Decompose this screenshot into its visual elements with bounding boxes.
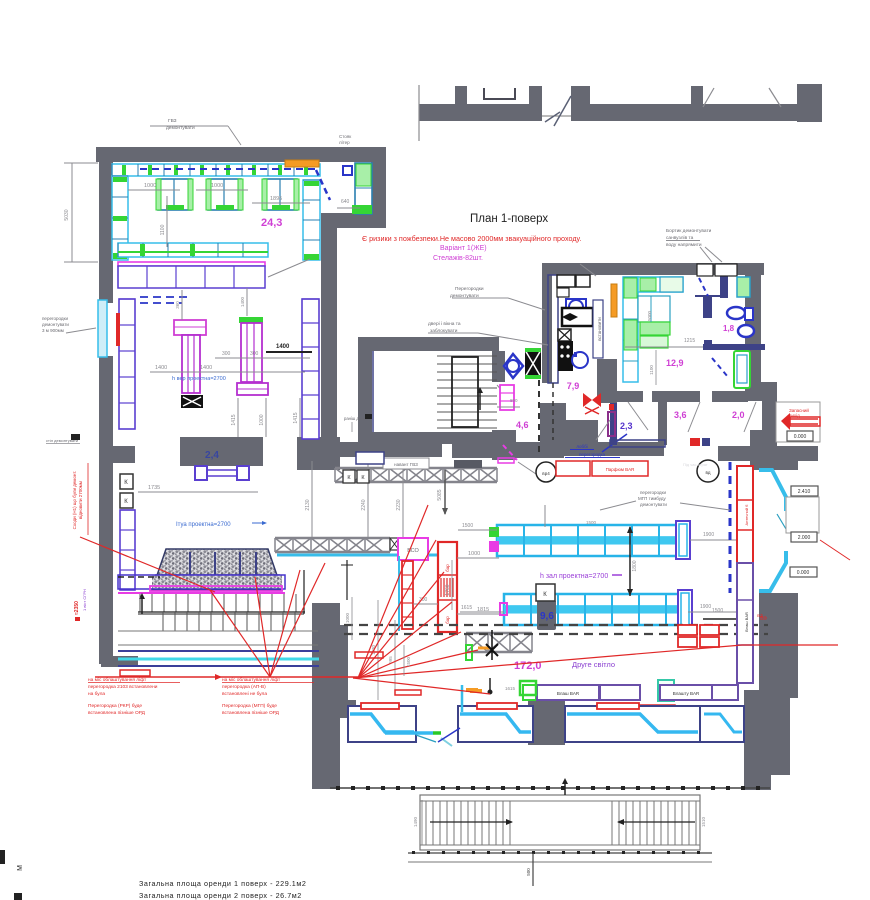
svg-text:літер: літер: [339, 140, 350, 145]
svg-text:перегородка: перегородка: [579, 452, 606, 457]
svg-text:0.000: 0.000: [794, 434, 807, 440]
svg-text:двері і вікна та: двері і вікна та: [428, 321, 461, 327]
svg-text:1415: 1415: [293, 412, 299, 423]
svg-text:вд: вд: [706, 470, 711, 475]
svg-text:Ітуа проектна=2700: Ітуа проектна=2700: [176, 522, 231, 528]
svg-text:7,9: 7,9: [567, 381, 580, 391]
svg-text:1400: 1400: [200, 365, 212, 371]
svg-text:Стояк: Стояк: [339, 134, 351, 139]
svg-text:3 м 900мм: 3 м 900мм: [42, 328, 64, 333]
svg-text:2.410: 2.410: [798, 489, 811, 495]
svg-text:1000: 1000: [211, 183, 223, 189]
svg-text:демонтувати: демонтувати: [166, 126, 195, 131]
svg-text:1415: 1415: [231, 414, 237, 425]
svg-text:2,0: 2,0: [732, 410, 745, 420]
svg-text:навант ГВЗ: навант ГВЗ: [394, 462, 418, 467]
svg-text:5030: 5030: [64, 209, 70, 220]
svg-text:12,9: 12,9: [666, 358, 684, 368]
svg-text:1615: 1615: [461, 605, 472, 611]
svg-text:демонтувати: демонтувати: [640, 502, 667, 507]
svg-text:К: К: [124, 499, 128, 505]
svg-text:2,4: 2,4: [205, 450, 219, 461]
svg-text:4,6: 4,6: [516, 420, 529, 430]
svg-text:Парфюм BAR: Парфюм BAR: [606, 467, 636, 472]
svg-text:1,8: 1,8: [723, 324, 735, 333]
svg-text:300: 300: [250, 351, 259, 357]
svg-text:3,6: 3,6: [674, 410, 687, 420]
svg-text:1735: 1735: [148, 485, 160, 491]
svg-text:2,3: 2,3: [620, 421, 633, 431]
svg-text:1000: 1000: [144, 183, 156, 189]
svg-text:встановлена пізніше ОРД: встановлена пізніше ОРД: [222, 710, 280, 716]
svg-text:1500: 1500: [462, 523, 473, 529]
svg-text:Влаш BAR: Влаш BAR: [744, 612, 749, 632]
svg-text:Перегородка (МГП) буде: Перегородка (МГП) буде: [222, 703, 277, 709]
svg-text:Друге світло: Друге світло: [572, 660, 615, 669]
svg-text:1760: 1760: [445, 584, 451, 595]
svg-text:1800: 1800: [632, 560, 638, 571]
svg-text:встановлені не була: встановлені не була: [222, 691, 267, 697]
svg-text:1900: 1900: [700, 604, 711, 610]
svg-text:перегородки: перегородки: [640, 490, 666, 495]
svg-text:h вер проектна=2700: h вер проектна=2700: [172, 376, 226, 382]
svg-text:Загальна площа оренди 2 поверх: Загальна площа оренди 2 поверх - 26.7м2: [139, 891, 302, 900]
svg-text:1490: 1490: [413, 816, 418, 827]
svg-text:Влаш BAR: Влаш BAR: [557, 691, 580, 696]
svg-text:1400: 1400: [240, 296, 245, 307]
svg-text:1900: 1900: [703, 532, 714, 538]
svg-text:Перегородки: Перегородки: [455, 286, 484, 292]
svg-text:1000: 1000: [259, 414, 265, 425]
svg-text:воду напрямити: воду напрямити: [666, 243, 702, 248]
svg-text:1895: 1895: [270, 196, 282, 202]
svg-text:на була: на була: [88, 691, 105, 697]
svg-text:2230: 2230: [396, 499, 402, 510]
svg-text:1100: 1100: [649, 365, 654, 375]
svg-text:1500: 1500: [406, 656, 411, 667]
svg-text:360: 360: [175, 301, 180, 309]
svg-text:Під час втрат: Під час втрат: [683, 462, 708, 467]
svg-text:9,6: 9,6: [540, 611, 554, 622]
svg-text:ГВЗ: ГВЗ: [168, 118, 177, 124]
svg-text:640: 640: [341, 199, 350, 205]
svg-text:1500: 1500: [586, 520, 597, 525]
svg-text:1500: 1500: [712, 608, 723, 614]
svg-text:5000: 5000: [647, 310, 652, 321]
svg-text:Бортик демонтувати: Бортик демонтувати: [666, 228, 712, 234]
svg-text:ВФ: ВФ: [760, 616, 767, 622]
svg-text:2.000: 2.000: [798, 535, 811, 541]
svg-text:2240: 2240: [361, 499, 367, 510]
svg-text:1215: 1215: [684, 338, 695, 344]
svg-text:К: К: [543, 592, 547, 598]
svg-text:відновити 2700мм: відновити 2700мм: [78, 481, 83, 519]
svg-text:1000: 1000: [468, 551, 480, 557]
svg-text:1400: 1400: [155, 365, 167, 371]
svg-text:К: К: [124, 480, 128, 486]
svg-text:МГП тимбуду: МГП тимбуду: [638, 496, 666, 501]
svg-text:1400: 1400: [276, 344, 290, 350]
svg-text:1 віст СГРН: 1 віст СГРН: [82, 589, 87, 611]
svg-text:300: 300: [222, 351, 231, 357]
svg-text:1615: 1615: [505, 686, 516, 691]
svg-text:500: 500: [526, 868, 531, 876]
svg-text:бар: бар: [445, 616, 450, 624]
svg-text:М: М: [17, 865, 24, 871]
svg-text:План 1-поверх: План 1-поверх: [470, 213, 548, 225]
svg-text:2130: 2130: [305, 499, 311, 510]
svg-text:h зал проектна=2700: h зал проектна=2700: [540, 573, 608, 580]
svg-text:≈2350: ≈2350: [74, 601, 80, 615]
svg-text:демонтувати: демонтувати: [42, 322, 69, 327]
svg-text:перегородки: перегородки: [42, 316, 68, 321]
svg-text:890: 890: [510, 398, 518, 403]
svg-text:Загальна площа оренди 1 поверх: Загальна площа оренди 1 поверх - 229.1м2: [139, 879, 306, 888]
svg-text:Аптечний б: Аптечний б: [744, 504, 749, 526]
svg-text:перегородка 2103 встановлени: перегородка 2103 встановлени: [88, 684, 158, 690]
svg-text:встановити: встановити: [597, 317, 602, 341]
svg-text:1100: 1100: [160, 224, 166, 235]
svg-text:вр4: вр4: [542, 471, 550, 476]
svg-text:5085: 5085: [437, 489, 443, 500]
svg-text:Влашту BAR: Влашту BAR: [673, 691, 700, 696]
svg-text:бар: бар: [445, 564, 450, 572]
svg-text:вихід: вихід: [789, 413, 800, 418]
svg-text:лоббі: лоббі: [576, 444, 587, 449]
svg-text:0.000: 0.000: [797, 570, 810, 576]
svg-text:встановлена пізніше ОРД: встановлена пізніше ОРД: [88, 710, 146, 716]
svg-text:24,3: 24,3: [261, 217, 282, 229]
svg-text:Варіант 1(ЖЕ): Варіант 1(ЖЕ): [440, 244, 487, 252]
svg-text:Сходи (Н1) що були демонт.: Сходи (Н1) що були демонт.: [72, 471, 77, 530]
svg-text:перегородка (АП-В): перегородка (АП-В): [222, 684, 266, 690]
svg-text:1000: 1000: [345, 612, 350, 623]
svg-text:Перегородка (РКР) буде: Перегородка (РКР) буде: [88, 703, 142, 709]
svg-text:Є ризики з пожбезпеки.Не масов: Є ризики з пожбезпеки.Не масово 2000мм з…: [362, 234, 581, 243]
svg-text:Стелажів-82шт.: Стелажів-82шт.: [433, 254, 483, 262]
svg-text:1510: 1510: [701, 816, 706, 827]
